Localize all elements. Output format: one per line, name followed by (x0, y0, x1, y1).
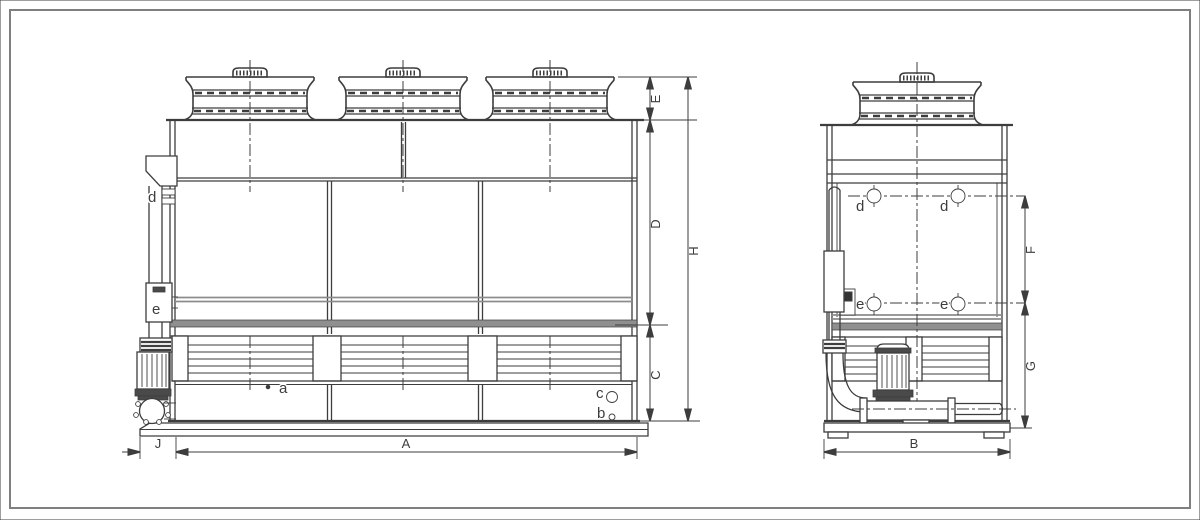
pump-body (866, 401, 950, 420)
connection-c-label: c (596, 385, 604, 402)
connection-e-label-right: e (940, 296, 948, 313)
drawing-sheet: a c b d e (0, 0, 1200, 520)
connection-d-port-left (867, 189, 881, 203)
connection-a-label: a (279, 380, 288, 397)
connection-d-label-right: d (940, 198, 948, 215)
dimension-A: A (402, 436, 411, 451)
dimension-E: E (648, 94, 663, 103)
connection-e-label-left: e (856, 296, 864, 313)
connection-b-port (609, 414, 615, 420)
connection-a-point (266, 385, 270, 389)
connection-c-port (607, 392, 618, 403)
cooling-tower-technical-drawing: a c b d e (0, 0, 1200, 520)
pump-volute-front (140, 399, 165, 424)
basin-edge-strip (170, 320, 637, 327)
dimension-H: H (686, 246, 701, 255)
dimension-C: C (648, 370, 663, 379)
connection-d-label: d (148, 189, 156, 206)
connection-e-port-right (951, 297, 965, 311)
connection-d-port-right (951, 189, 965, 203)
dimension-J: J (155, 436, 162, 451)
connection-d-label-left: d (856, 198, 864, 215)
background (0, 0, 1200, 520)
dimension-F: F (1023, 246, 1038, 254)
dimension-D: D (648, 219, 663, 228)
connection-b-label: b (597, 405, 605, 422)
dimension-G: G (1023, 361, 1038, 371)
connection-e-label: e (152, 301, 160, 318)
dimension-B: B (910, 436, 919, 451)
connection-e-port-left (867, 297, 881, 311)
